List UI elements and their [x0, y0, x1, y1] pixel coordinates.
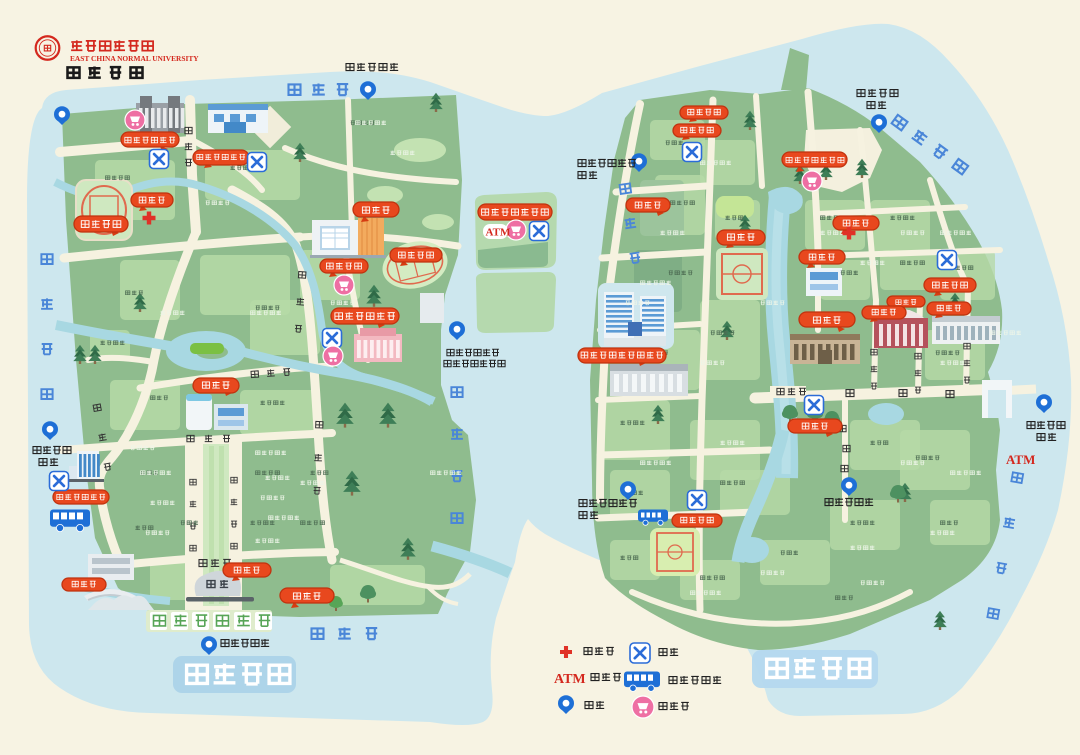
svg-text:EAST CHINA NORMAL UNIVERSITY: EAST CHINA NORMAL UNIVERSITY — [70, 54, 199, 63]
svg-text:ATM: ATM — [1006, 452, 1035, 467]
svg-text:ATM: ATM — [554, 672, 586, 687]
svg-text:ATM: ATM — [486, 227, 511, 239]
